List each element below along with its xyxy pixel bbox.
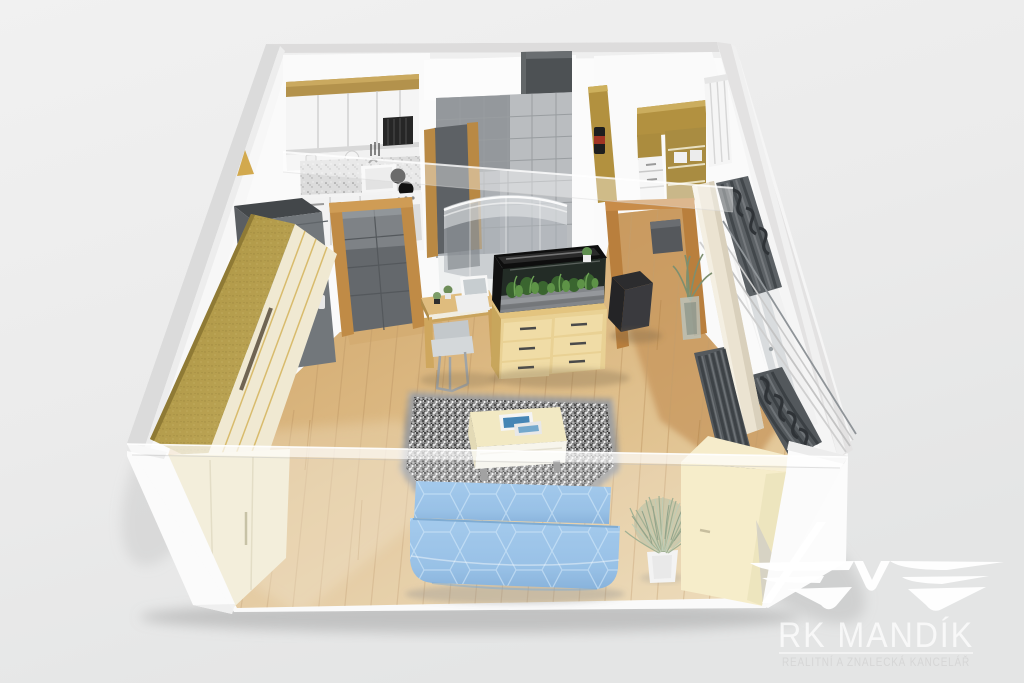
svg-text:REALITNÍ A ZNALECKÁ KANCELÁŘ: REALITNÍ A ZNALECKÁ KANCELÁŘ	[782, 654, 970, 669]
svg-text:RK MANDÍK: RK MANDÍK	[778, 616, 974, 655]
